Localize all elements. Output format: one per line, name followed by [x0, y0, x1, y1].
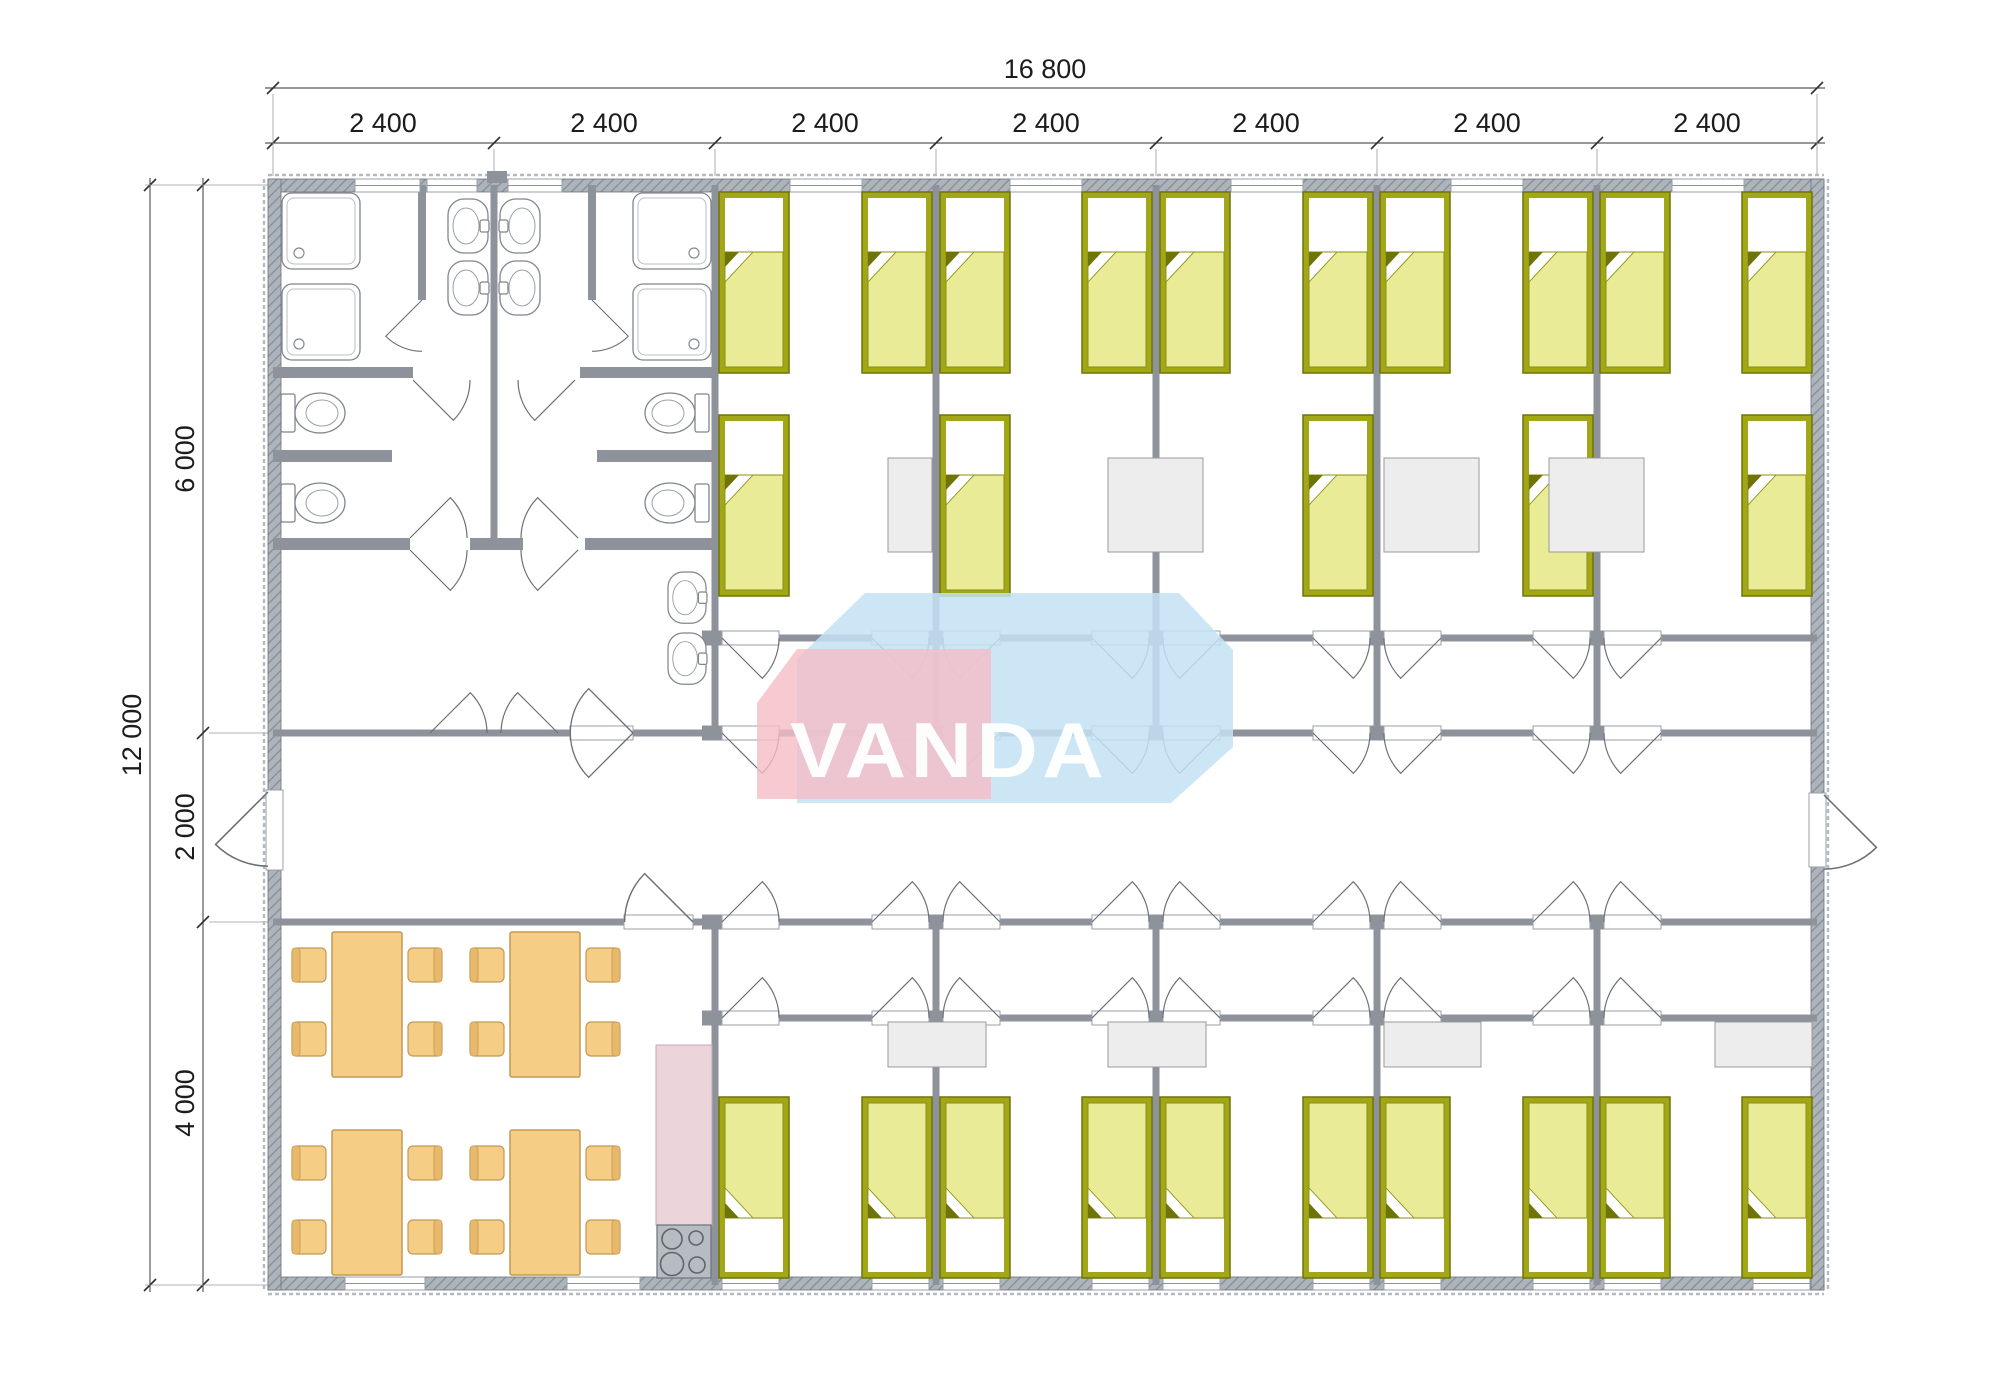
chair	[586, 1220, 620, 1254]
bed	[940, 415, 1010, 596]
bed	[1160, 192, 1230, 373]
door-swing	[521, 498, 578, 538]
door-swing	[430, 693, 487, 733]
floor-plan-page: 16 800 2 400 2 400 2 400 2 400 2 400 2 4…	[0, 0, 2000, 1391]
dim-module-label: 2 400	[1673, 108, 1741, 138]
dim-module-label: 2 400	[1232, 108, 1300, 138]
bed	[1742, 1097, 1812, 1278]
door-opening	[1384, 631, 1441, 645]
vanda-watermark: VANDA	[757, 593, 1233, 803]
bed	[719, 415, 789, 596]
door-opening	[1313, 1011, 1370, 1025]
door-opening	[1313, 915, 1370, 929]
chair	[408, 948, 442, 982]
bedside-table	[1549, 458, 1644, 552]
chair	[292, 1022, 326, 1056]
toilet-icon	[645, 393, 709, 433]
chair	[292, 1220, 326, 1254]
door-opening	[1533, 1011, 1590, 1025]
bed	[1523, 192, 1593, 373]
bathroom-center-wall	[491, 185, 498, 550]
door-opening	[722, 1011, 779, 1025]
chair	[292, 948, 326, 982]
dim-module-label: 2 400	[791, 108, 859, 138]
module-wall	[933, 918, 940, 1285]
dim-zone-label: 6 000	[170, 425, 200, 493]
shower-room-wall	[588, 185, 596, 300]
bed	[940, 1097, 1010, 1278]
door-swing	[501, 693, 558, 733]
door-swing	[410, 550, 467, 590]
dining-table	[332, 932, 402, 1077]
module-wall	[1153, 918, 1160, 1285]
bathroom-wall	[273, 367, 413, 378]
door-opening	[1533, 915, 1590, 929]
door-opening	[872, 915, 929, 929]
door-opening	[722, 631, 779, 645]
bed	[1082, 1097, 1152, 1278]
chair	[408, 1146, 442, 1180]
door-swing	[386, 300, 422, 351]
door-opening	[1604, 1011, 1661, 1025]
door-opening	[570, 726, 633, 740]
bed	[1303, 192, 1373, 373]
entrance-door-opening	[1809, 793, 1826, 867]
chair	[586, 1022, 620, 1056]
dim-total-height-label: 12 000	[117, 694, 147, 777]
dining-table	[332, 1130, 402, 1275]
bedside-table	[1384, 458, 1479, 552]
chair	[586, 1146, 620, 1180]
chair	[292, 1146, 326, 1180]
bedside-table	[1715, 1022, 1812, 1067]
door-swing	[413, 380, 470, 420]
chair	[470, 1220, 504, 1254]
bedside-table	[1384, 1022, 1481, 1067]
bed	[1523, 1097, 1593, 1278]
door-swing	[592, 300, 628, 351]
bathroom-wall	[580, 367, 715, 378]
bed	[719, 1097, 789, 1278]
door-opening	[1604, 726, 1661, 740]
entrance-door-swing	[216, 792, 268, 866]
washbasin-icon	[668, 633, 707, 684]
shower-room-wall	[418, 185, 426, 300]
door-opening	[1163, 915, 1220, 929]
bed	[862, 1097, 932, 1278]
bedside-table	[888, 1022, 986, 1067]
door-swing	[410, 498, 467, 538]
chair	[470, 1146, 504, 1180]
shower-tray-icon	[282, 193, 360, 269]
toilet-stall-wall	[597, 450, 715, 462]
entrance-door-opening	[266, 790, 283, 870]
kitchen	[656, 1045, 712, 1278]
dining-area	[292, 932, 620, 1275]
toilet-icon	[281, 483, 345, 523]
bed	[1600, 192, 1670, 373]
dim-module-label: 2 400	[570, 108, 638, 138]
toilet-icon	[281, 393, 345, 433]
dimension-side: 12 000 6 000 2 000 4 000	[117, 178, 273, 1292]
stove-icon	[657, 1225, 711, 1278]
washbasin-icon	[448, 199, 489, 253]
chair	[586, 948, 620, 982]
module-wall	[712, 185, 719, 734]
bed	[1380, 1097, 1450, 1278]
bed	[1082, 192, 1152, 373]
door-opening	[1092, 915, 1149, 929]
shower-tray-icon	[633, 193, 711, 269]
washbasin-icon	[668, 572, 707, 623]
bed	[862, 192, 932, 373]
dim-module-label: 2 400	[349, 108, 417, 138]
dimension-top: 16 800 2 400 2 400 2 400 2 400 2 400 2 4…	[265, 54, 1825, 176]
bed	[1380, 192, 1450, 373]
door-opening	[1313, 726, 1370, 740]
bed	[1600, 1097, 1670, 1278]
toilet-stall-wall	[273, 450, 392, 462]
chair	[408, 1220, 442, 1254]
door-opening	[624, 915, 693, 929]
door-opening	[1533, 631, 1590, 645]
exterior-wall-bottom	[268, 1277, 1824, 1290]
door-opening	[1604, 915, 1661, 929]
shower-tray-icon	[633, 284, 711, 360]
floor-plan-drawing: 16 800 2 400 2 400 2 400 2 400 2 400 2 4…	[0, 0, 2000, 1391]
dim-zone-label: 2 000	[170, 793, 200, 861]
door-opening	[1533, 726, 1590, 740]
bedside-table	[1108, 458, 1203, 552]
logo-text: VANDA	[790, 706, 1108, 794]
entrance-door-swing	[1824, 795, 1876, 869]
washbasin-icon	[499, 199, 540, 253]
door-swing	[521, 550, 578, 590]
dim-module-label: 2 400	[1453, 108, 1521, 138]
door-swing	[518, 380, 575, 420]
chair	[470, 1022, 504, 1056]
door-opening	[1384, 915, 1441, 929]
washbasin-icon	[448, 261, 489, 315]
door-opening	[1604, 631, 1661, 645]
dining-table	[510, 932, 580, 1077]
chair	[408, 1022, 442, 1056]
bed	[719, 192, 789, 373]
shower-tray-icon	[282, 284, 360, 360]
dim-zone-label: 4 000	[170, 1069, 200, 1137]
toilet-icon	[645, 483, 709, 523]
bed	[1742, 415, 1812, 596]
dim-module-label: 2 400	[1012, 108, 1080, 138]
door-opening	[943, 915, 1000, 929]
bedside-table	[888, 458, 932, 552]
bed	[1160, 1097, 1230, 1278]
door-opening	[1384, 726, 1441, 740]
bathroom-wall	[470, 538, 523, 550]
bed	[940, 192, 1010, 373]
door-opening	[722, 915, 779, 929]
bathroom-wall	[585, 538, 715, 550]
bed	[1303, 415, 1373, 596]
dim-total-width-label: 16 800	[1004, 54, 1087, 84]
bedside-table	[1108, 1022, 1206, 1067]
washbasin-icon	[499, 261, 540, 315]
roof-vent	[487, 171, 507, 183]
chair	[470, 948, 504, 982]
module-wall	[712, 918, 719, 1285]
dining-table	[510, 1130, 580, 1275]
bed	[1742, 192, 1812, 373]
door-opening	[1313, 631, 1370, 645]
bathroom-wall	[273, 538, 410, 550]
kitchen-counter	[656, 1045, 712, 1225]
bed	[1303, 1097, 1373, 1278]
